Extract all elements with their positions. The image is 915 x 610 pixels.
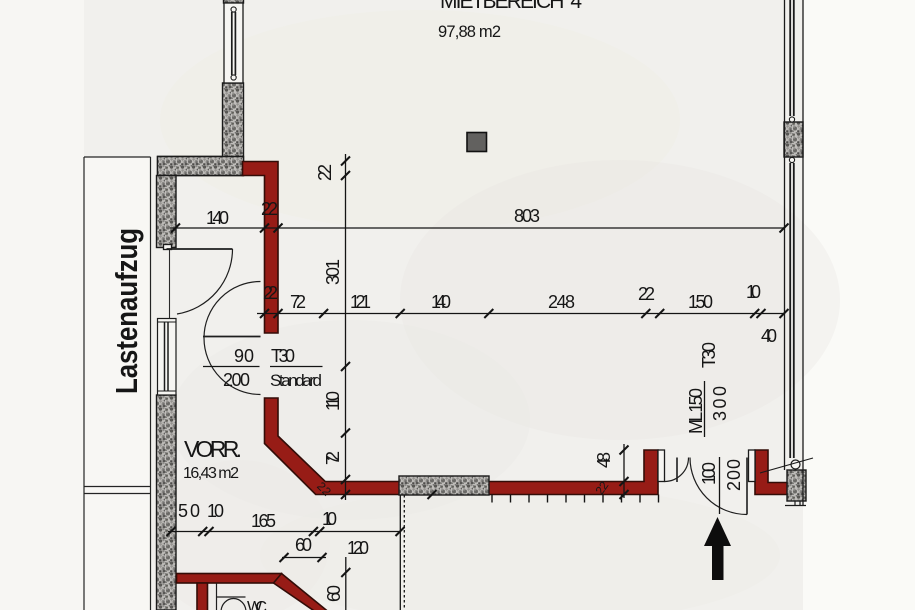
svg-text:22: 22: [261, 199, 278, 219]
svg-text:10: 10: [322, 509, 337, 529]
svg-text:22: 22: [638, 284, 655, 304]
svg-text:140: 140: [431, 292, 451, 312]
svg-text:WC: WC: [247, 599, 267, 610]
svg-text:10: 10: [746, 282, 761, 302]
svg-text:300: 300: [710, 386, 730, 421]
svg-text:50: 50: [178, 501, 200, 521]
svg-text:72: 72: [323, 451, 343, 465]
svg-text:110: 110: [323, 391, 343, 411]
svg-text:140: 140: [206, 208, 229, 228]
svg-text:120: 120: [347, 538, 369, 558]
svg-text:200: 200: [724, 459, 744, 491]
svg-text:60: 60: [295, 535, 312, 555]
svg-text:48: 48: [594, 452, 614, 468]
svg-text:97,88 m2: 97,88 m2: [438, 23, 501, 41]
svg-text:ML 150: ML 150: [686, 388, 706, 434]
svg-text:16,43 m2: 16,43 m2: [183, 465, 239, 482]
svg-text:150: 150: [688, 292, 713, 312]
svg-text:72: 72: [290, 292, 306, 312]
svg-text:60: 60: [324, 585, 344, 602]
svg-text:165: 165: [251, 511, 276, 531]
svg-text:VORR.: VORR.: [184, 436, 242, 462]
svg-text:121: 121: [350, 292, 371, 312]
svg-text:40: 40: [761, 326, 777, 346]
svg-text:200: 200: [223, 370, 250, 390]
svg-text:T30: T30: [699, 342, 719, 368]
svg-text:MIETBEREICH 4: MIETBEREICH 4: [440, 0, 582, 13]
svg-text:248: 248: [548, 292, 575, 312]
svg-text:Standard: Standard: [270, 371, 322, 390]
svg-text:10: 10: [207, 501, 224, 521]
svg-text:90: 90: [234, 346, 254, 366]
svg-text:22: 22: [263, 283, 278, 303]
svg-text:22: 22: [315, 164, 335, 181]
svg-text:Lastenaufzug: Lastenaufzug: [109, 228, 144, 394]
svg-text:T30: T30: [271, 346, 295, 366]
svg-text:803: 803: [514, 206, 540, 226]
svg-text:301: 301: [323, 259, 343, 285]
svg-text:100: 100: [699, 462, 719, 485]
